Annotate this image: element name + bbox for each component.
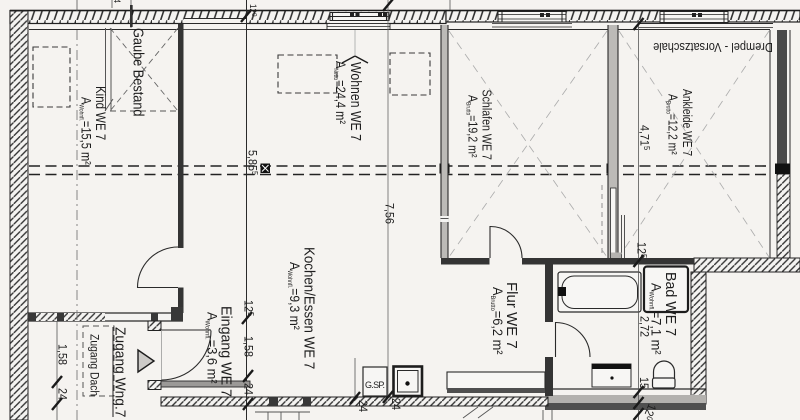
svg-text:Ankleide WE 7: Ankleide WE 7 <box>680 89 693 156</box>
svg-text:Kind WE 7: Kind WE 7 <box>93 86 109 140</box>
svg-text:7,56: 7,56 <box>382 203 395 224</box>
svg-text:Drempel - Vorsatzschale: Drempel - Vorsatzschale <box>653 40 773 54</box>
svg-text:24: 24 <box>241 383 254 396</box>
svg-text:24: 24 <box>356 400 369 413</box>
svg-text:24: 24 <box>389 398 402 411</box>
svg-text:24: 24 <box>55 388 68 401</box>
svg-text:1,58: 1,58 <box>55 344 68 365</box>
svg-text:Schlafen WE 7: Schlafen WE 7 <box>479 90 494 160</box>
svg-text:Wohnen WE 7: Wohnen WE 7 <box>348 62 364 141</box>
svg-text:Kochen/Essen WE 7: Kochen/Essen WE 7 <box>301 247 318 370</box>
svg-text:1,58: 1,58 <box>241 336 254 357</box>
svg-text:2,72: 2,72 <box>637 316 650 337</box>
svg-text:15: 15 <box>637 377 650 389</box>
svg-text:Zugang Wng.7: Zugang Wng.7 <box>111 327 128 417</box>
svg-text:Gaube Bestand: Gaube Bestand <box>130 28 147 117</box>
svg-text:Zugang Dach: Zugang Dach <box>87 334 100 396</box>
svg-text:24: 24 <box>112 0 123 3</box>
svg-text:G.SP.: G.SP. <box>365 380 385 390</box>
